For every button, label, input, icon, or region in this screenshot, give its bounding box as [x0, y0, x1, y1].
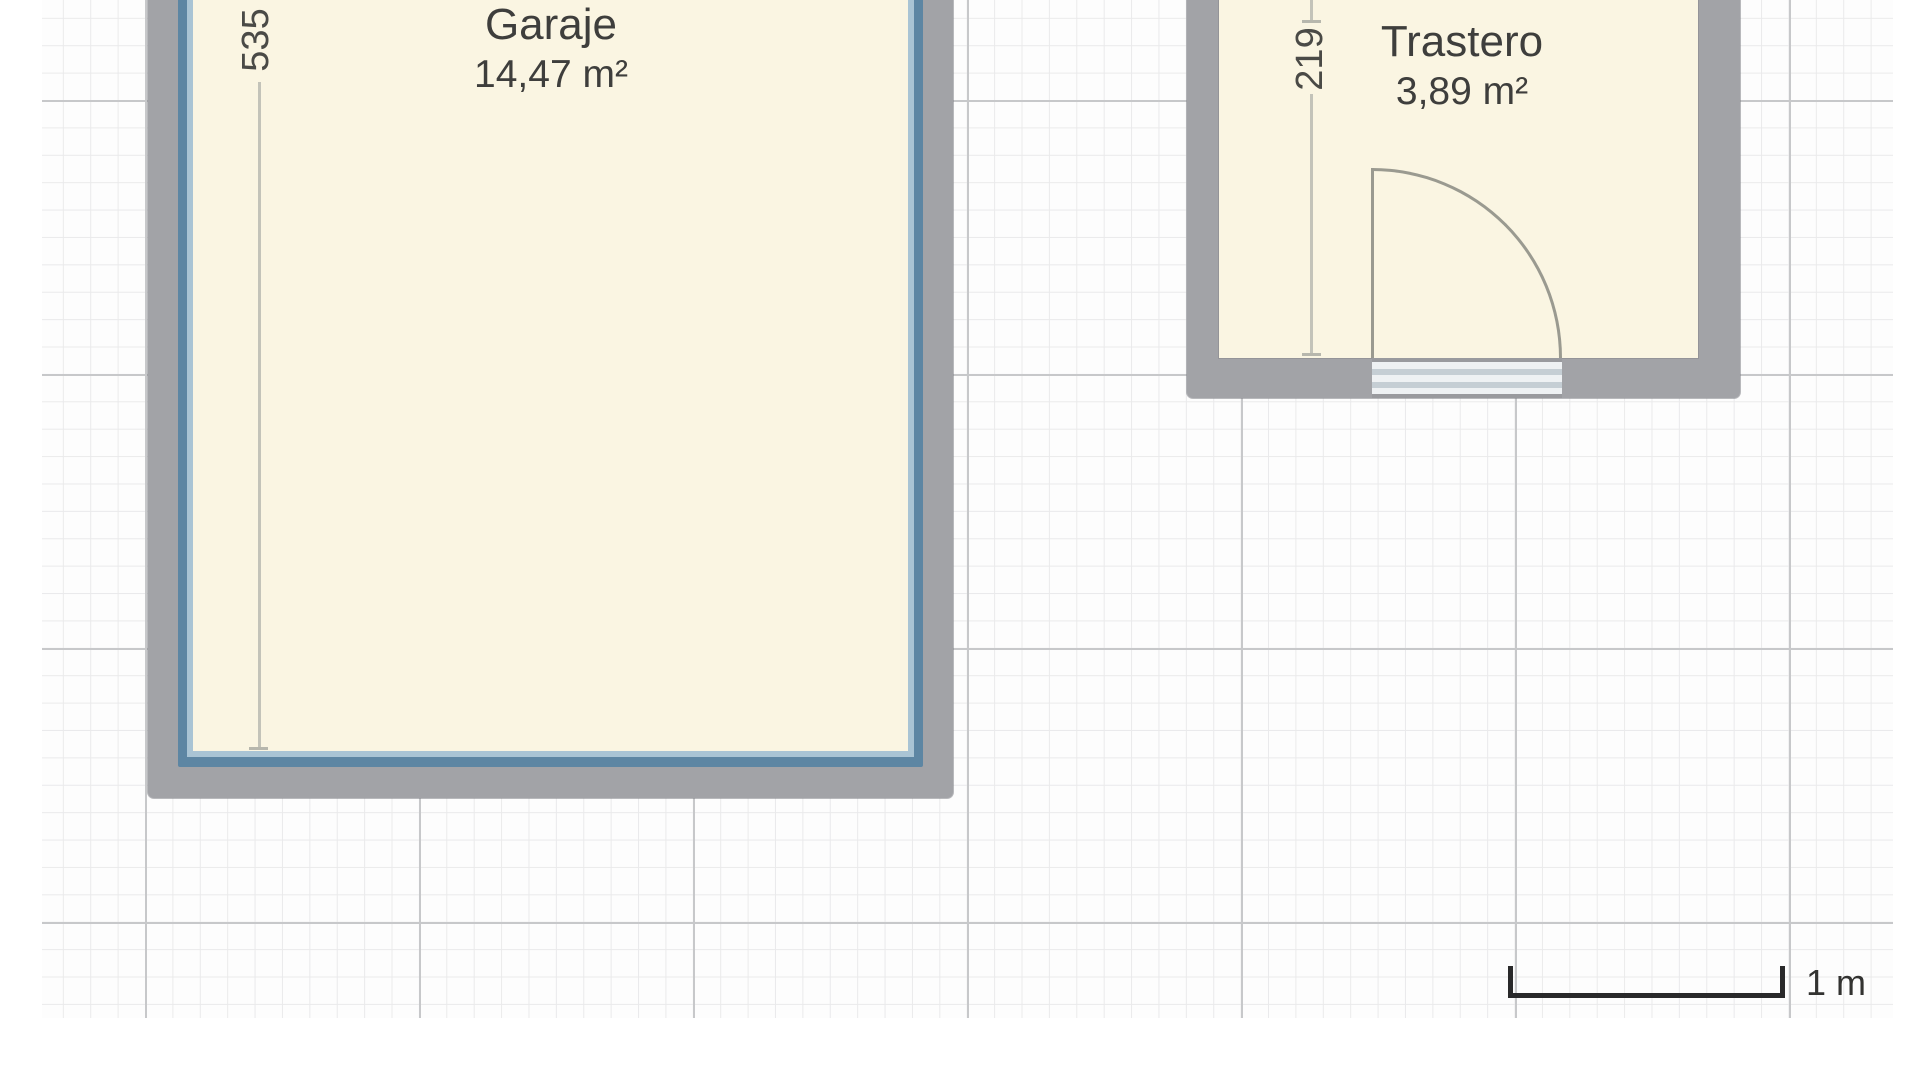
trastero-dimension-end-tick [1302, 353, 1321, 356]
garaje-label: Garaje 14,47 m² [401, 1, 701, 97]
canvas-margin-left [0, 0, 42, 1080]
garaje-room-area: 14,47 m² [401, 54, 701, 97]
door-threshold[interactable] [1372, 358, 1562, 398]
canvas-margin-bottom [0, 1018, 1920, 1080]
garaje-dimension-label: 535 [231, 0, 281, 90]
trastero-room-area: 3,89 m² [1312, 71, 1612, 114]
scale-bar-label: 1 m [1806, 962, 1866, 1004]
garaje-room-name: Garaje [401, 1, 701, 49]
trastero-dimension-line [1310, 94, 1313, 356]
trastero-room-name: Trastero [1312, 18, 1612, 66]
trastero-label: Trastero 3,89 m² [1312, 18, 1612, 114]
scale-bar [1508, 966, 1785, 998]
canvas-margin-right [1893, 0, 1920, 1080]
garaje-room-interior[interactable] [193, 0, 908, 751]
garaje-dimension-end-tick [249, 747, 268, 750]
floorplan-canvas: 535 Garaje 14,47 m² 219 Trastero 3,89 m²… [0, 0, 1920, 1080]
garaje-dimension-line [258, 82, 261, 749]
